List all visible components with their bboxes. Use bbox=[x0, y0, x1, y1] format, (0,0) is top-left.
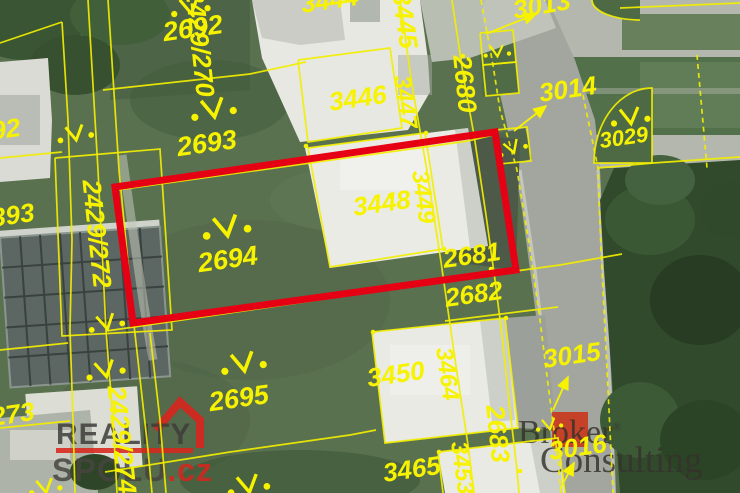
parcel-label-2680: 2680 bbox=[447, 52, 483, 114]
parcel-label-2695: 2695 bbox=[206, 379, 272, 417]
parcel-pointer-arrow bbox=[553, 377, 568, 410]
parcel-label-3446: 3446 bbox=[327, 79, 389, 117]
parcel-label-3016: 3016 bbox=[547, 428, 609, 466]
parcel-label-2683: 2683 bbox=[480, 402, 516, 464]
land-use-symbol bbox=[483, 44, 512, 58]
parcel-label-3450: 3450 bbox=[365, 355, 427, 393]
parcel-label-3447: 3447 bbox=[388, 74, 422, 132]
parcel-label-2694: 2694 bbox=[195, 240, 260, 278]
land-use-symbol bbox=[225, 472, 270, 493]
parcel-pointer-arrow bbox=[514, 106, 546, 131]
parcel-label-3015: 3015 bbox=[541, 336, 603, 374]
parcel-label-3014: 3014 bbox=[537, 70, 599, 108]
parcel-label-393: 393 bbox=[0, 197, 37, 233]
parcel-label-2429/272: 2429/272 bbox=[76, 177, 117, 290]
land-use-symbol bbox=[27, 477, 63, 493]
parcel-label-3448: 3448 bbox=[351, 184, 413, 222]
land-use-symbol bbox=[200, 212, 252, 240]
land-use-symbol bbox=[84, 357, 127, 381]
parcel-label-92: 92 bbox=[0, 112, 23, 146]
land-use-symbol bbox=[189, 95, 238, 121]
land-use-symbol bbox=[219, 349, 268, 375]
parcel-label-3449: 3449 bbox=[406, 169, 440, 226]
land-use-symbol bbox=[534, 416, 563, 432]
parcel-label-3029: 3029 bbox=[598, 121, 651, 153]
parcel-label-3444: 3444 bbox=[299, 0, 361, 19]
parcel-label-3445: 3445 bbox=[386, 0, 424, 51]
parcel-label-2429/274: 2429/274 bbox=[101, 383, 142, 493]
cadastral-map-viewport: REALITY SPOLU.cz Broker® Consulting bbox=[0, 0, 740, 493]
parcel-label-3465: 3465 bbox=[381, 450, 443, 488]
land-use-symbol bbox=[56, 123, 95, 144]
parcel-label-2693: 2693 bbox=[174, 124, 239, 162]
parcel-label-3464: 3464 bbox=[430, 346, 464, 403]
cadastre-overlay: 2429/2702429/2722429/2742692269326942695… bbox=[0, 0, 740, 493]
parcel-label-273: 273 bbox=[0, 396, 37, 432]
